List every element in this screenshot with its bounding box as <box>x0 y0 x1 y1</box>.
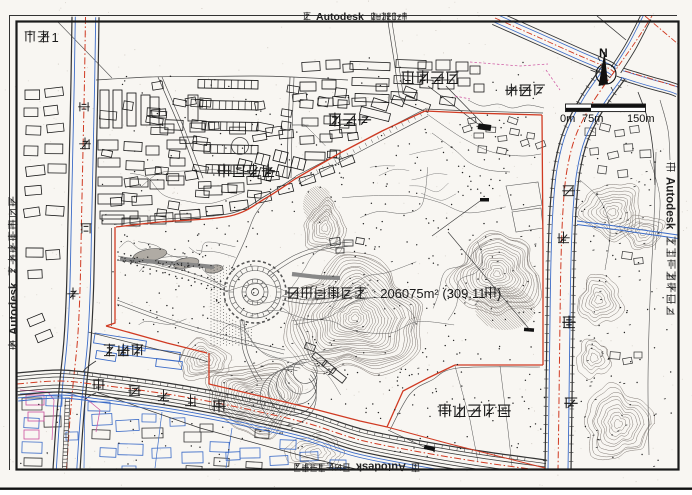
svg-text:75m: 75m <box>582 113 603 125</box>
svg-text:Autodesk: Autodesk <box>9 282 21 335</box>
svg-text:0m: 0m <box>560 113 575 125</box>
svg-text:Autodesk: Autodesk <box>355 461 406 473</box>
svg-text:N: N <box>599 46 608 60</box>
svg-text:): ) <box>497 286 501 301</box>
svg-text:Autodesk: Autodesk <box>316 11 364 23</box>
svg-text:: 206075m² (309.11: : 206075m² (309.11 <box>373 286 486 301</box>
svg-text:Autodesk: Autodesk <box>664 177 676 230</box>
svg-text:1: 1 <box>52 30 59 45</box>
svg-text:150m: 150m <box>627 113 655 125</box>
